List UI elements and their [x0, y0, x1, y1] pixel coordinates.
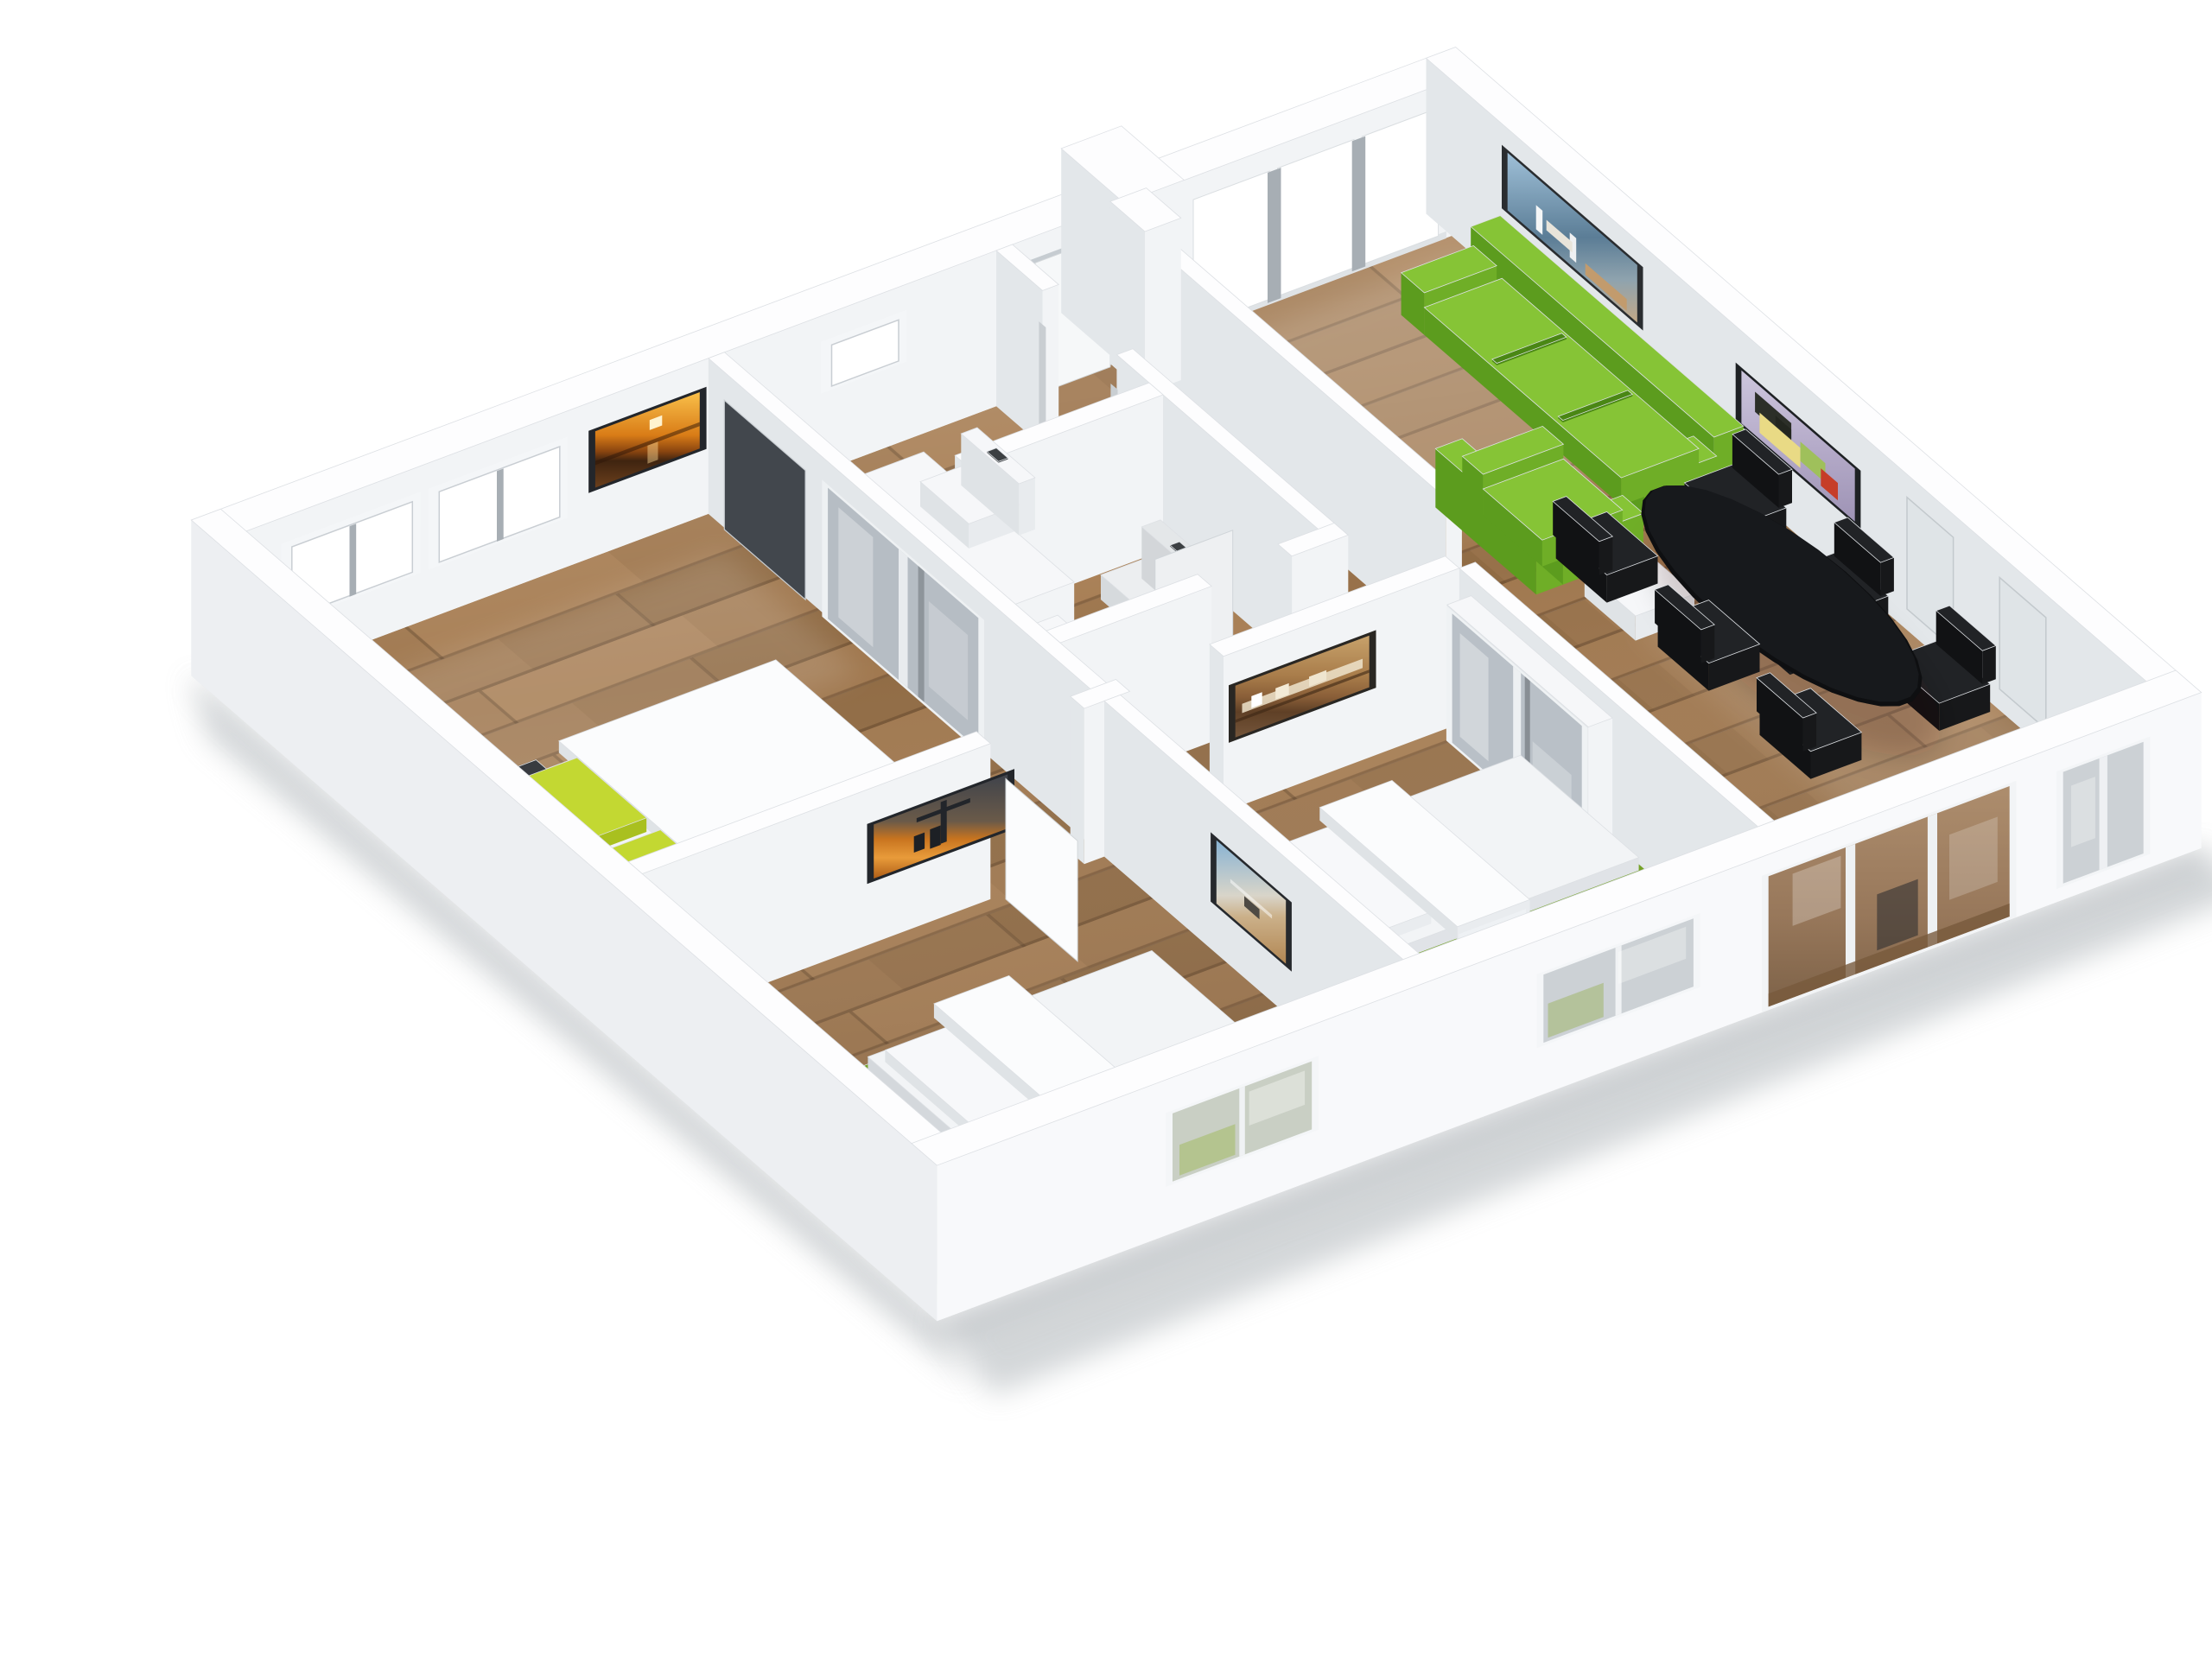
dining-chair-near-2-back: [1701, 625, 1715, 663]
floor-plan-stage: [0, 0, 2212, 1656]
dining-chair-far-1-back: [1779, 469, 1793, 508]
wall-southeast-outer: [912, 1144, 938, 1322]
living-glazing-mullion-2: [1352, 136, 1366, 272]
se-window-bedroom2: [1239, 1087, 1245, 1157]
bedroom1-window-2-mullion: [497, 468, 504, 542]
art-windmill-sunset: [941, 800, 947, 844]
se-sliding-doors: [1846, 844, 1855, 978]
se-window-narrow: [2071, 777, 2095, 847]
dining-chair-far-3-back: [1982, 646, 1996, 685]
wardrobe1-sliding-front: [918, 566, 925, 702]
dining-chair-near-1-back: [1599, 536, 1613, 575]
floorplan-3d-render: [0, 0, 2212, 1656]
se-sliding-doors: [1928, 813, 1937, 947]
wardrobe1-sliding-front: [899, 549, 908, 688]
wc-toilet-tank: [1019, 478, 1035, 536]
dining-chair-near-3-back: [1803, 713, 1817, 752]
dining-chair-far-2-back: [1880, 557, 1894, 596]
art-windmill-sunset: [930, 825, 940, 848]
bedroom1-window-1-mullion: [350, 523, 357, 597]
living-glazing-mullion-1: [1268, 168, 1281, 303]
se-window-narrow: [2100, 756, 2107, 871]
